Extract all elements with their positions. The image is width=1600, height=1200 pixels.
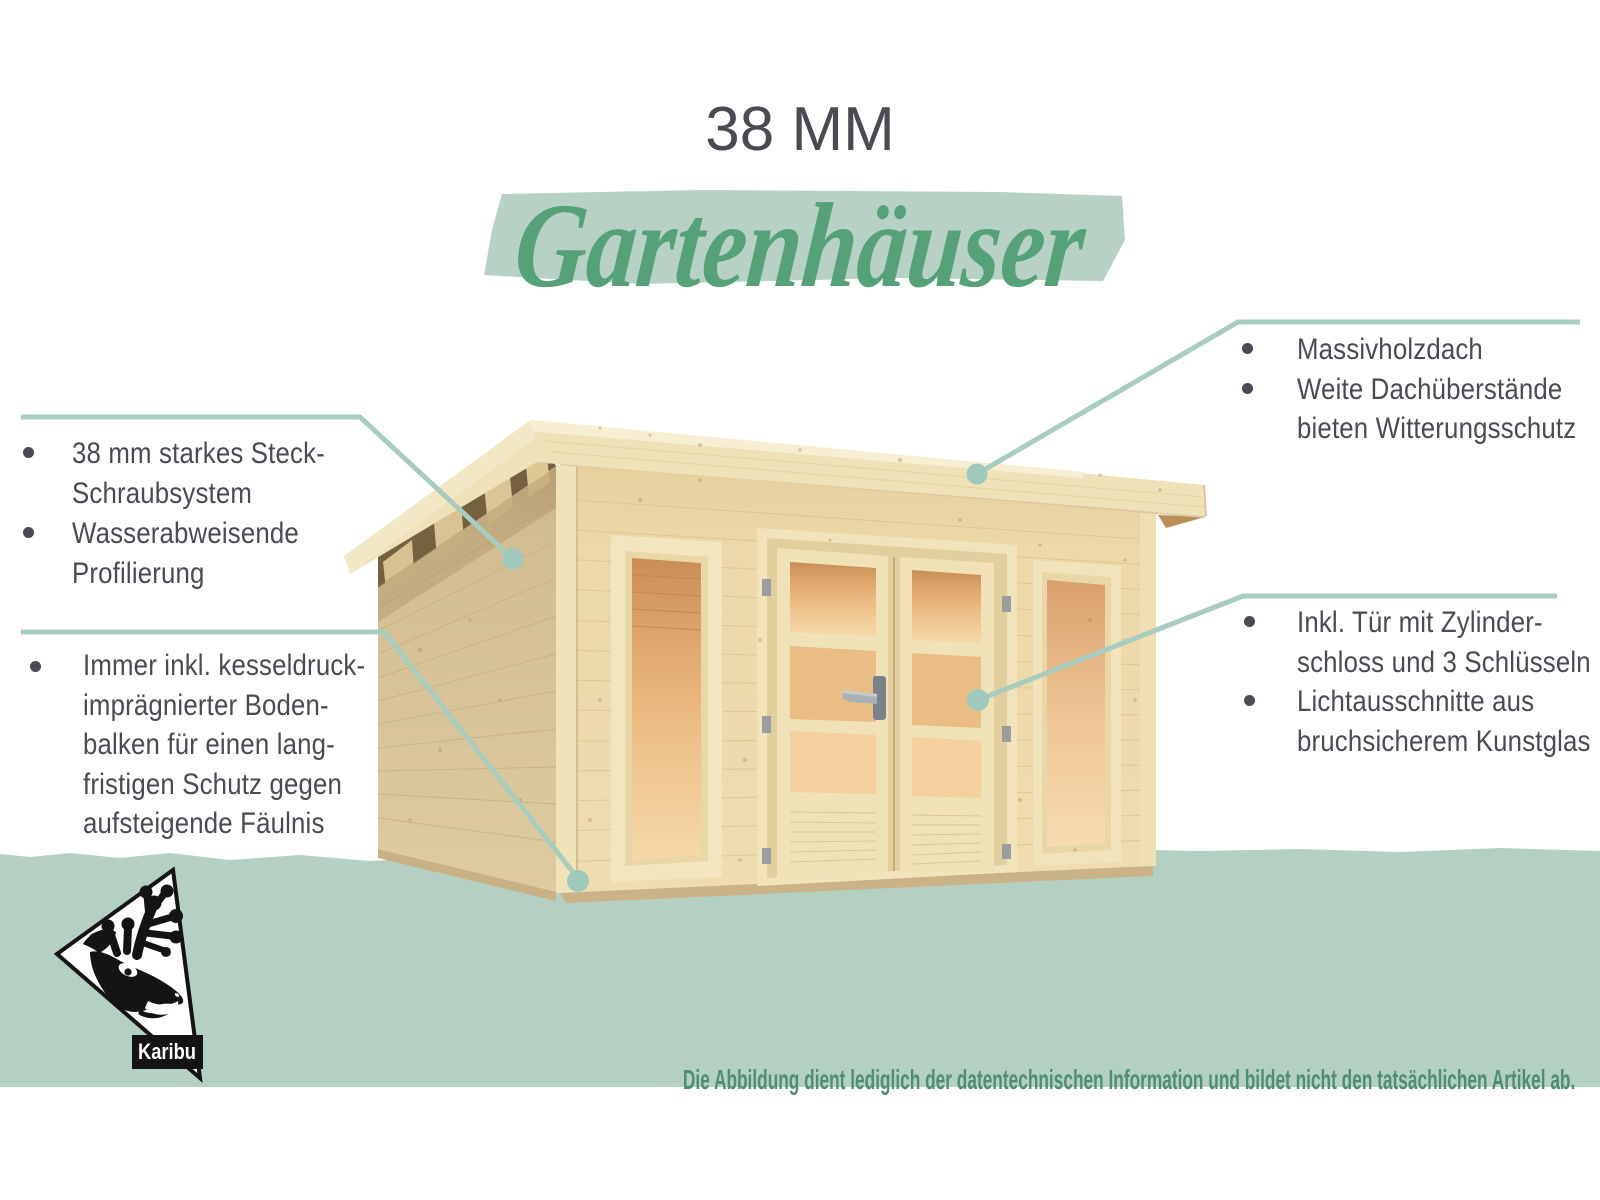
svg-text:Karibu: Karibu xyxy=(138,1039,196,1064)
